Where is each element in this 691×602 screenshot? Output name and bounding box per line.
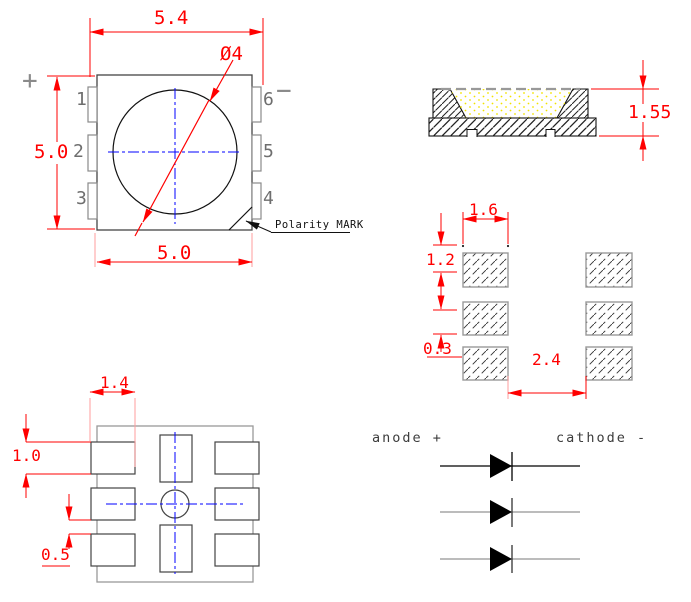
dim-1-2-0-3 xyxy=(427,213,462,357)
side-view-drawing xyxy=(429,60,659,161)
dim-body-width-label: 5.0 xyxy=(157,244,191,263)
drawing-linework xyxy=(0,0,691,602)
led-package-drawing: 5.4 5.0 5.0 Ø4 + − 1 2 3 6 5 4 Polarity … xyxy=(0,0,691,602)
dim-bottom-pad-width-label: 1.4 xyxy=(100,375,129,391)
pad-layout-drawing xyxy=(427,212,632,399)
plus-symbol: + xyxy=(22,68,38,94)
pin-6-label: 6 xyxy=(263,91,274,109)
dim-pad-gap-label: 0.3 xyxy=(423,341,452,357)
pin-1-label: 1 xyxy=(76,91,87,109)
dim-pad-width-label: 1.6 xyxy=(469,202,498,218)
dim-bottom-pad-gap-label: 0.5 xyxy=(41,547,70,563)
pin-4-label: 4 xyxy=(263,190,274,208)
dim-bottom-pad-height-label: 1.0 xyxy=(12,448,41,464)
diode-icon xyxy=(440,452,580,481)
cathode-label: cathode - xyxy=(556,432,647,446)
dim-2-4 xyxy=(508,376,586,399)
dim-column-gap-label: 2.4 xyxy=(532,352,561,368)
pin-5-label: 5 xyxy=(263,143,274,161)
diode-symbols xyxy=(440,452,580,573)
minus-symbol: − xyxy=(276,78,292,104)
dim-overall-width-label: 5.4 xyxy=(154,9,188,28)
anode-label: anode + xyxy=(372,432,443,446)
pin-2-label: 2 xyxy=(73,143,84,161)
dim-body-height-label: 5.0 xyxy=(34,143,68,162)
dim-height-label: 1.55 xyxy=(627,104,672,122)
polarity-mark-label: Polarity MARK xyxy=(275,220,364,231)
encapsulant-area xyxy=(450,89,573,118)
pin-3-label: 3 xyxy=(76,190,87,208)
diode-icon xyxy=(440,498,580,527)
dim-lens-diameter-label: Ø4 xyxy=(220,45,243,64)
diode-icon xyxy=(440,545,580,573)
dim-pad-height-label: 1.2 xyxy=(426,252,455,268)
